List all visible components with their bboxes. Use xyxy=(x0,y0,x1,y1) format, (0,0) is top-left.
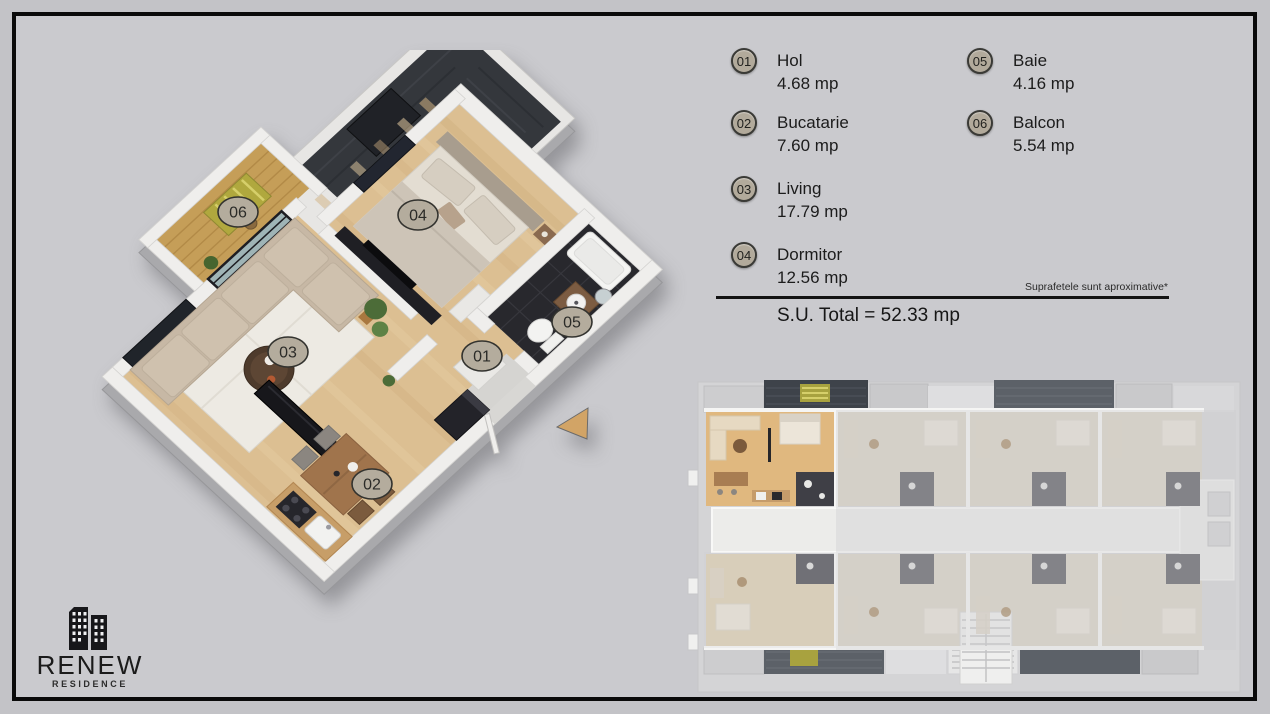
ac-units xyxy=(688,470,698,650)
room-name: Hol xyxy=(777,49,838,72)
legend-badge-06: 06 xyxy=(967,110,993,136)
room-badge-balcon: 06 xyxy=(229,205,247,222)
plan2d-figure xyxy=(668,372,1244,702)
room-name: Baie xyxy=(1013,49,1074,72)
room-badge-dormitor: 04 xyxy=(409,208,427,225)
plan3d-figure: 06 04 05 03 01 02 xyxy=(20,50,665,650)
room-area: 5.54 mp xyxy=(1013,134,1074,157)
legend-item-balcon: 06 Balcon 5.54 mp xyxy=(967,110,1074,157)
room-badge-bucatarie: 02 xyxy=(363,477,381,494)
room-badge-hol: 01 xyxy=(473,349,491,366)
room-badge-living: 03 xyxy=(279,345,297,362)
legend-badge-05: 05 xyxy=(967,48,993,74)
legend-item-living: 03 Living 17.79 mp xyxy=(731,176,848,223)
legend-item-hol: 01 Hol 4.68 mp xyxy=(731,48,838,95)
legend-badge-01: 01 xyxy=(731,48,757,74)
room-area: 17.79 mp xyxy=(777,200,848,223)
room-area: 4.16 mp xyxy=(1013,72,1074,95)
room-name: Living xyxy=(777,177,848,200)
room-name: Balcon xyxy=(1013,111,1074,134)
room-badge-baie: 05 xyxy=(563,315,581,332)
fade-overlay xyxy=(836,410,1236,650)
room-name: Dormitor xyxy=(777,243,848,266)
logo-icon xyxy=(62,604,118,654)
legend-item-baie: 05 Baie 4.16 mp xyxy=(967,48,1074,95)
room-name: Bucatarie xyxy=(777,111,849,134)
legend-badge-03: 03 xyxy=(731,176,757,202)
legend-item-bucatarie: 02 Bucatarie 7.60 mp xyxy=(731,110,849,157)
legend-divider xyxy=(716,296,1169,299)
brochure-page: { "legend": { "items": [ {"id": "01", "n… xyxy=(0,0,1270,714)
room-area: 4.68 mp xyxy=(777,72,838,95)
fade-overlay-bottom xyxy=(704,552,836,648)
room-area: 7.60 mp xyxy=(777,134,849,157)
total-area: S.U. Total = 52.33 mp xyxy=(777,305,960,327)
logo-subtitle: RESIDENCE xyxy=(36,679,144,689)
entrance-arrow-icon xyxy=(557,408,588,439)
legend-badge-04: 04 xyxy=(731,242,757,268)
legend-badge-02: 02 xyxy=(731,110,757,136)
approx-note: Suprafetele sunt aproximative* xyxy=(716,281,1168,293)
logo-title: RENEW xyxy=(36,650,144,681)
